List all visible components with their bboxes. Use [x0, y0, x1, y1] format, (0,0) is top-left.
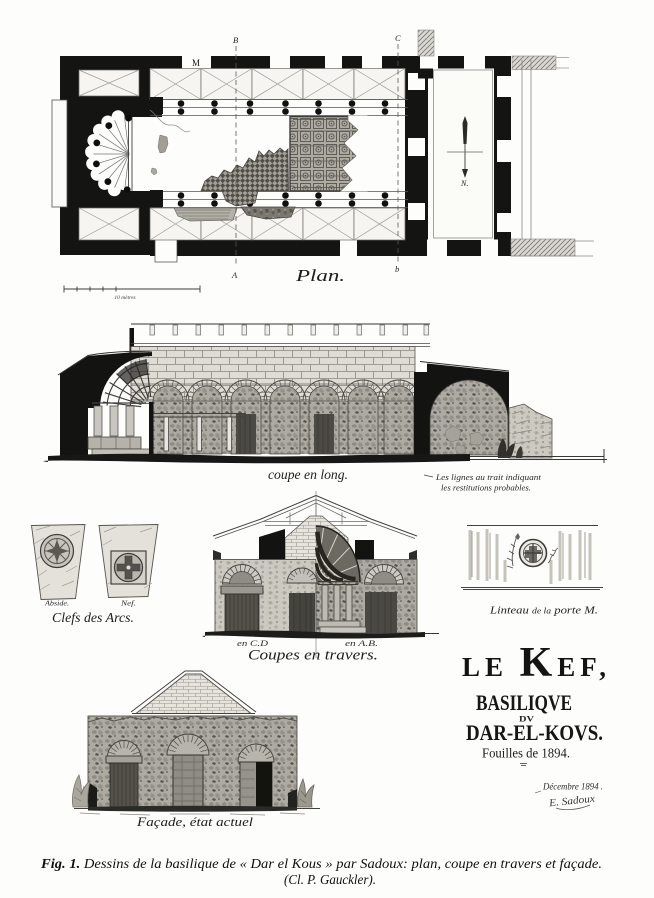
svg-text:10 mètres: 10 mètres — [114, 295, 135, 301]
svg-text:Nef.: Nef. — [120, 599, 136, 608]
svg-text:M: M — [192, 58, 200, 68]
svg-text:(Cl. P. Gauckler).: (Cl. P. Gauckler). — [284, 872, 376, 887]
svg-text:en A.B.: en A.B. — [345, 638, 378, 648]
svg-text:B: B — [233, 35, 238, 45]
svg-text:C: C — [395, 33, 401, 43]
svg-text:Abside.: Abside. — [44, 599, 69, 608]
svg-text:les restitutions probables.: les restitutions probables. — [441, 483, 531, 493]
svg-text:coupe en long.: coupe en long. — [268, 468, 348, 483]
svg-text:LE KEF,: LE KEF, — [462, 640, 611, 686]
svg-text:Clefs des Arcs.: Clefs des Arcs. — [52, 610, 134, 625]
svg-text:Coupes en travers.: Coupes en travers. — [248, 648, 378, 664]
svg-text:Décembre 1894 .: Décembre 1894 . — [542, 782, 603, 792]
svg-text:E. Sadoux: E. Sadoux — [548, 794, 596, 810]
svg-text:A: A — [231, 270, 238, 280]
svg-text:Fouilles de 1894.: Fouilles de 1894. — [482, 746, 570, 761]
svg-text:Fig. 1. Dessins de la basiliqu: Fig. 1. Dessins de la basilique de « Dar… — [40, 856, 602, 871]
svg-text:Linteau de la porte M.: Linteau de la porte M. — [489, 606, 598, 617]
svg-text:Façade, état actuel: Façade, état actuel — [136, 815, 254, 829]
svg-text:b: b — [395, 264, 399, 274]
svg-text:N.: N. — [460, 179, 468, 188]
svg-text:Les lignes au trait indiquant: Les lignes au trait indiquant — [435, 472, 542, 482]
svg-text:DAR-EL-KOVS.: DAR-EL-KOVS. — [466, 720, 603, 745]
svg-text:Plan.: Plan. — [295, 266, 345, 285]
svg-text:en C.D: en C.D — [237, 638, 269, 648]
svg-text:BASILIQVE: BASILIQVE — [476, 690, 572, 715]
